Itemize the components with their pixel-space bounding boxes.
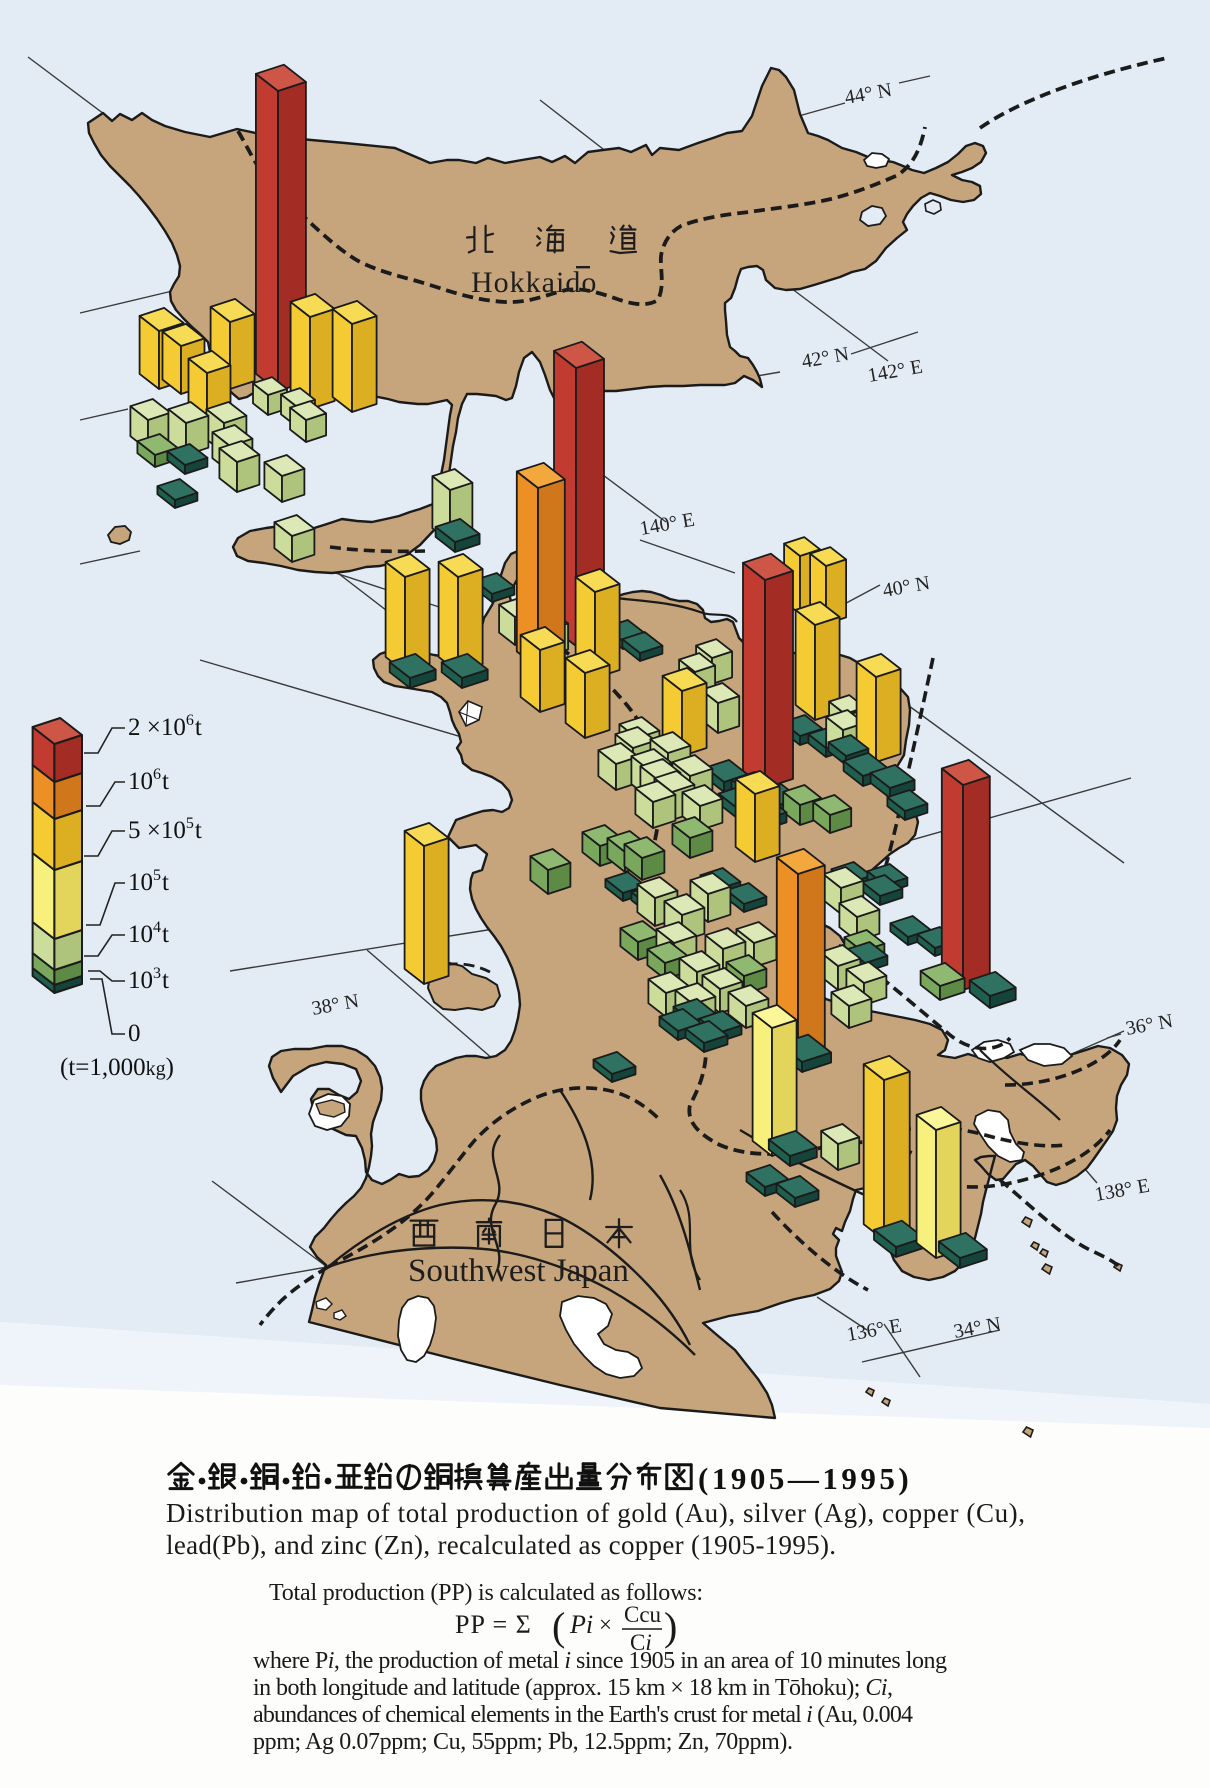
svg-text:(: ( xyxy=(552,1604,565,1649)
svg-text:Hokkaido: Hokkaido xyxy=(471,266,597,299)
svg-text:Ccu: Ccu xyxy=(624,1602,662,1627)
svg-text:PP = Σ: PP = Σ xyxy=(455,1610,532,1639)
svg-text:104t: 104t xyxy=(128,919,169,948)
svg-text:Pi: Pi xyxy=(569,1610,593,1639)
svg-text:103t: 103t xyxy=(128,965,169,994)
svg-text:abundances of chemical element: abundances of chemical elements in the E… xyxy=(253,1702,913,1728)
svg-text:(1905—1995): (1905—1995) xyxy=(698,1461,912,1496)
svg-text:in both longitude and latitude: in both longitude and latitude (approx. … xyxy=(253,1675,893,1701)
svg-text:Southwest Japan: Southwest Japan xyxy=(408,1253,629,1289)
svg-text:ppm; Ag 0.07ppm; Cu, 55ppm; Pb: ppm; Ag 0.07ppm; Cu, 55ppm; Pb, 12.5ppm;… xyxy=(253,1729,793,1755)
svg-text:(t=1,000kg): (t=1,000kg) xyxy=(60,1054,174,1081)
svg-text:105t: 105t xyxy=(128,867,169,896)
svg-text:where Pi, the production of me: where Pi, the production of metal i sinc… xyxy=(253,1648,947,1674)
svg-text:Distribution map of total prod: Distribution map of total production of … xyxy=(166,1498,1025,1528)
svg-text:×: × xyxy=(599,1612,612,1637)
svg-text:106t: 106t xyxy=(128,766,169,795)
svg-text:): ) xyxy=(664,1604,677,1649)
svg-text:0: 0 xyxy=(128,1020,141,1047)
svg-text:lead(Pb), and zinc (Zn), recal: lead(Pb), and zinc (Zn), recalculated as… xyxy=(166,1530,836,1560)
